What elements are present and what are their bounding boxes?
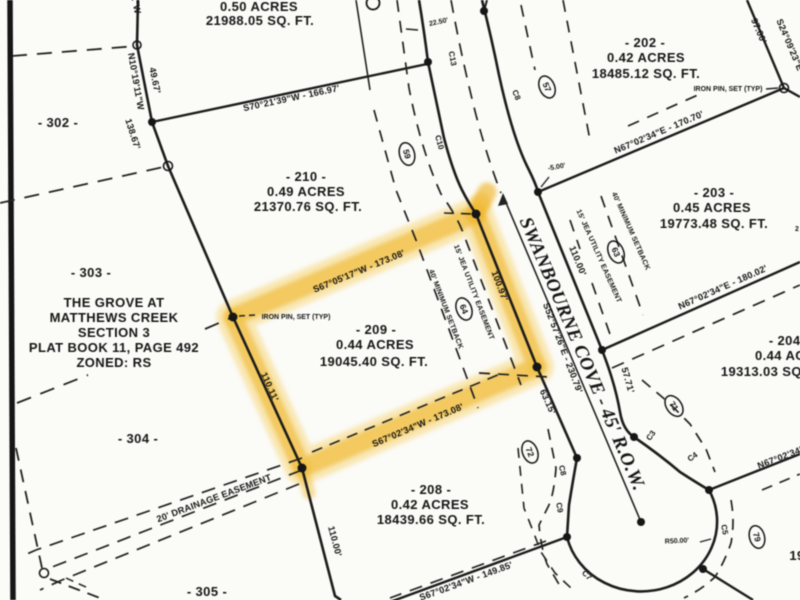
svg-text:C9: C9 <box>554 502 565 514</box>
svg-text:19: 19 <box>789 548 800 563</box>
svg-text:- 202 -: - 202 - <box>625 35 665 50</box>
svg-text:2: 2 <box>795 226 799 233</box>
svg-text:SECTION 3: SECTION 3 <box>78 325 150 340</box>
svg-text:0.49 ACRES: 0.49 ACRES <box>267 184 345 199</box>
svg-text:THE GROVE AT: THE GROVE AT <box>64 295 165 310</box>
svg-text:- 208 -: - 208 - <box>411 482 451 497</box>
svg-text:R50.00': R50.00' <box>665 537 690 545</box>
svg-text:19773.48 SQ. FT.: 19773.48 SQ. FT. <box>660 216 768 231</box>
svg-text:IRON PIN, SET (TYP): IRON PIN, SET (TYP) <box>262 314 331 321</box>
svg-text:PLAT BOOK 11, PAGE 492: PLAT BOOK 11, PAGE 492 <box>29 340 199 355</box>
svg-text:C5: C5 <box>719 524 730 536</box>
svg-text:- 204 -: - 204 - <box>769 333 800 348</box>
svg-text:0.44 ACRES: 0.44 ACRES <box>755 348 800 363</box>
svg-text:MATTHEWS CREEK: MATTHEWS CREEK <box>50 310 179 325</box>
svg-text:18485.12 SQ. FT.: 18485.12 SQ. FT. <box>592 66 700 81</box>
svg-text:- 302 -: - 302 - <box>38 115 78 130</box>
svg-text:21988.05 SQ. FT.: 21988.05 SQ. FT. <box>206 13 314 28</box>
svg-text:IRON PIN, SET (TYP): IRON PIN, SET (TYP) <box>694 86 763 93</box>
svg-text:0.42 ACRES: 0.42 ACRES <box>391 497 469 512</box>
svg-text:0.42 ACRES: 0.42 ACRES <box>607 50 685 65</box>
svg-text:0.50 ACRES: 0.50 ACRES <box>220 0 298 14</box>
svg-text:0.44 ACRES: 0.44 ACRES <box>336 337 414 352</box>
svg-text:21370.76 SQ. FT.: 21370.76 SQ. FT. <box>254 199 362 214</box>
svg-text:- 203 -: - 203 - <box>694 185 734 200</box>
svg-text:18439.66 SQ. FT.: 18439.66 SQ. FT. <box>377 512 485 527</box>
svg-text:- 303 -: - 303 - <box>71 265 111 280</box>
svg-text:19313.03 SQ. FT.: 19313.03 SQ. FT. <box>721 364 800 379</box>
svg-text:- 209 -: - 209 - <box>356 322 396 337</box>
svg-text:0.45 ACRES: 0.45 ACRES <box>673 200 751 215</box>
svg-text:- 210 -: - 210 - <box>286 169 326 184</box>
svg-text:19045.40 SQ. FT.: 19045.40 SQ. FT. <box>320 354 428 369</box>
svg-text:- 304 -: - 304 - <box>118 431 158 446</box>
svg-text:- 305 -: - 305 - <box>187 584 227 599</box>
svg-text:ZONED: RS: ZONED: RS <box>76 355 151 370</box>
